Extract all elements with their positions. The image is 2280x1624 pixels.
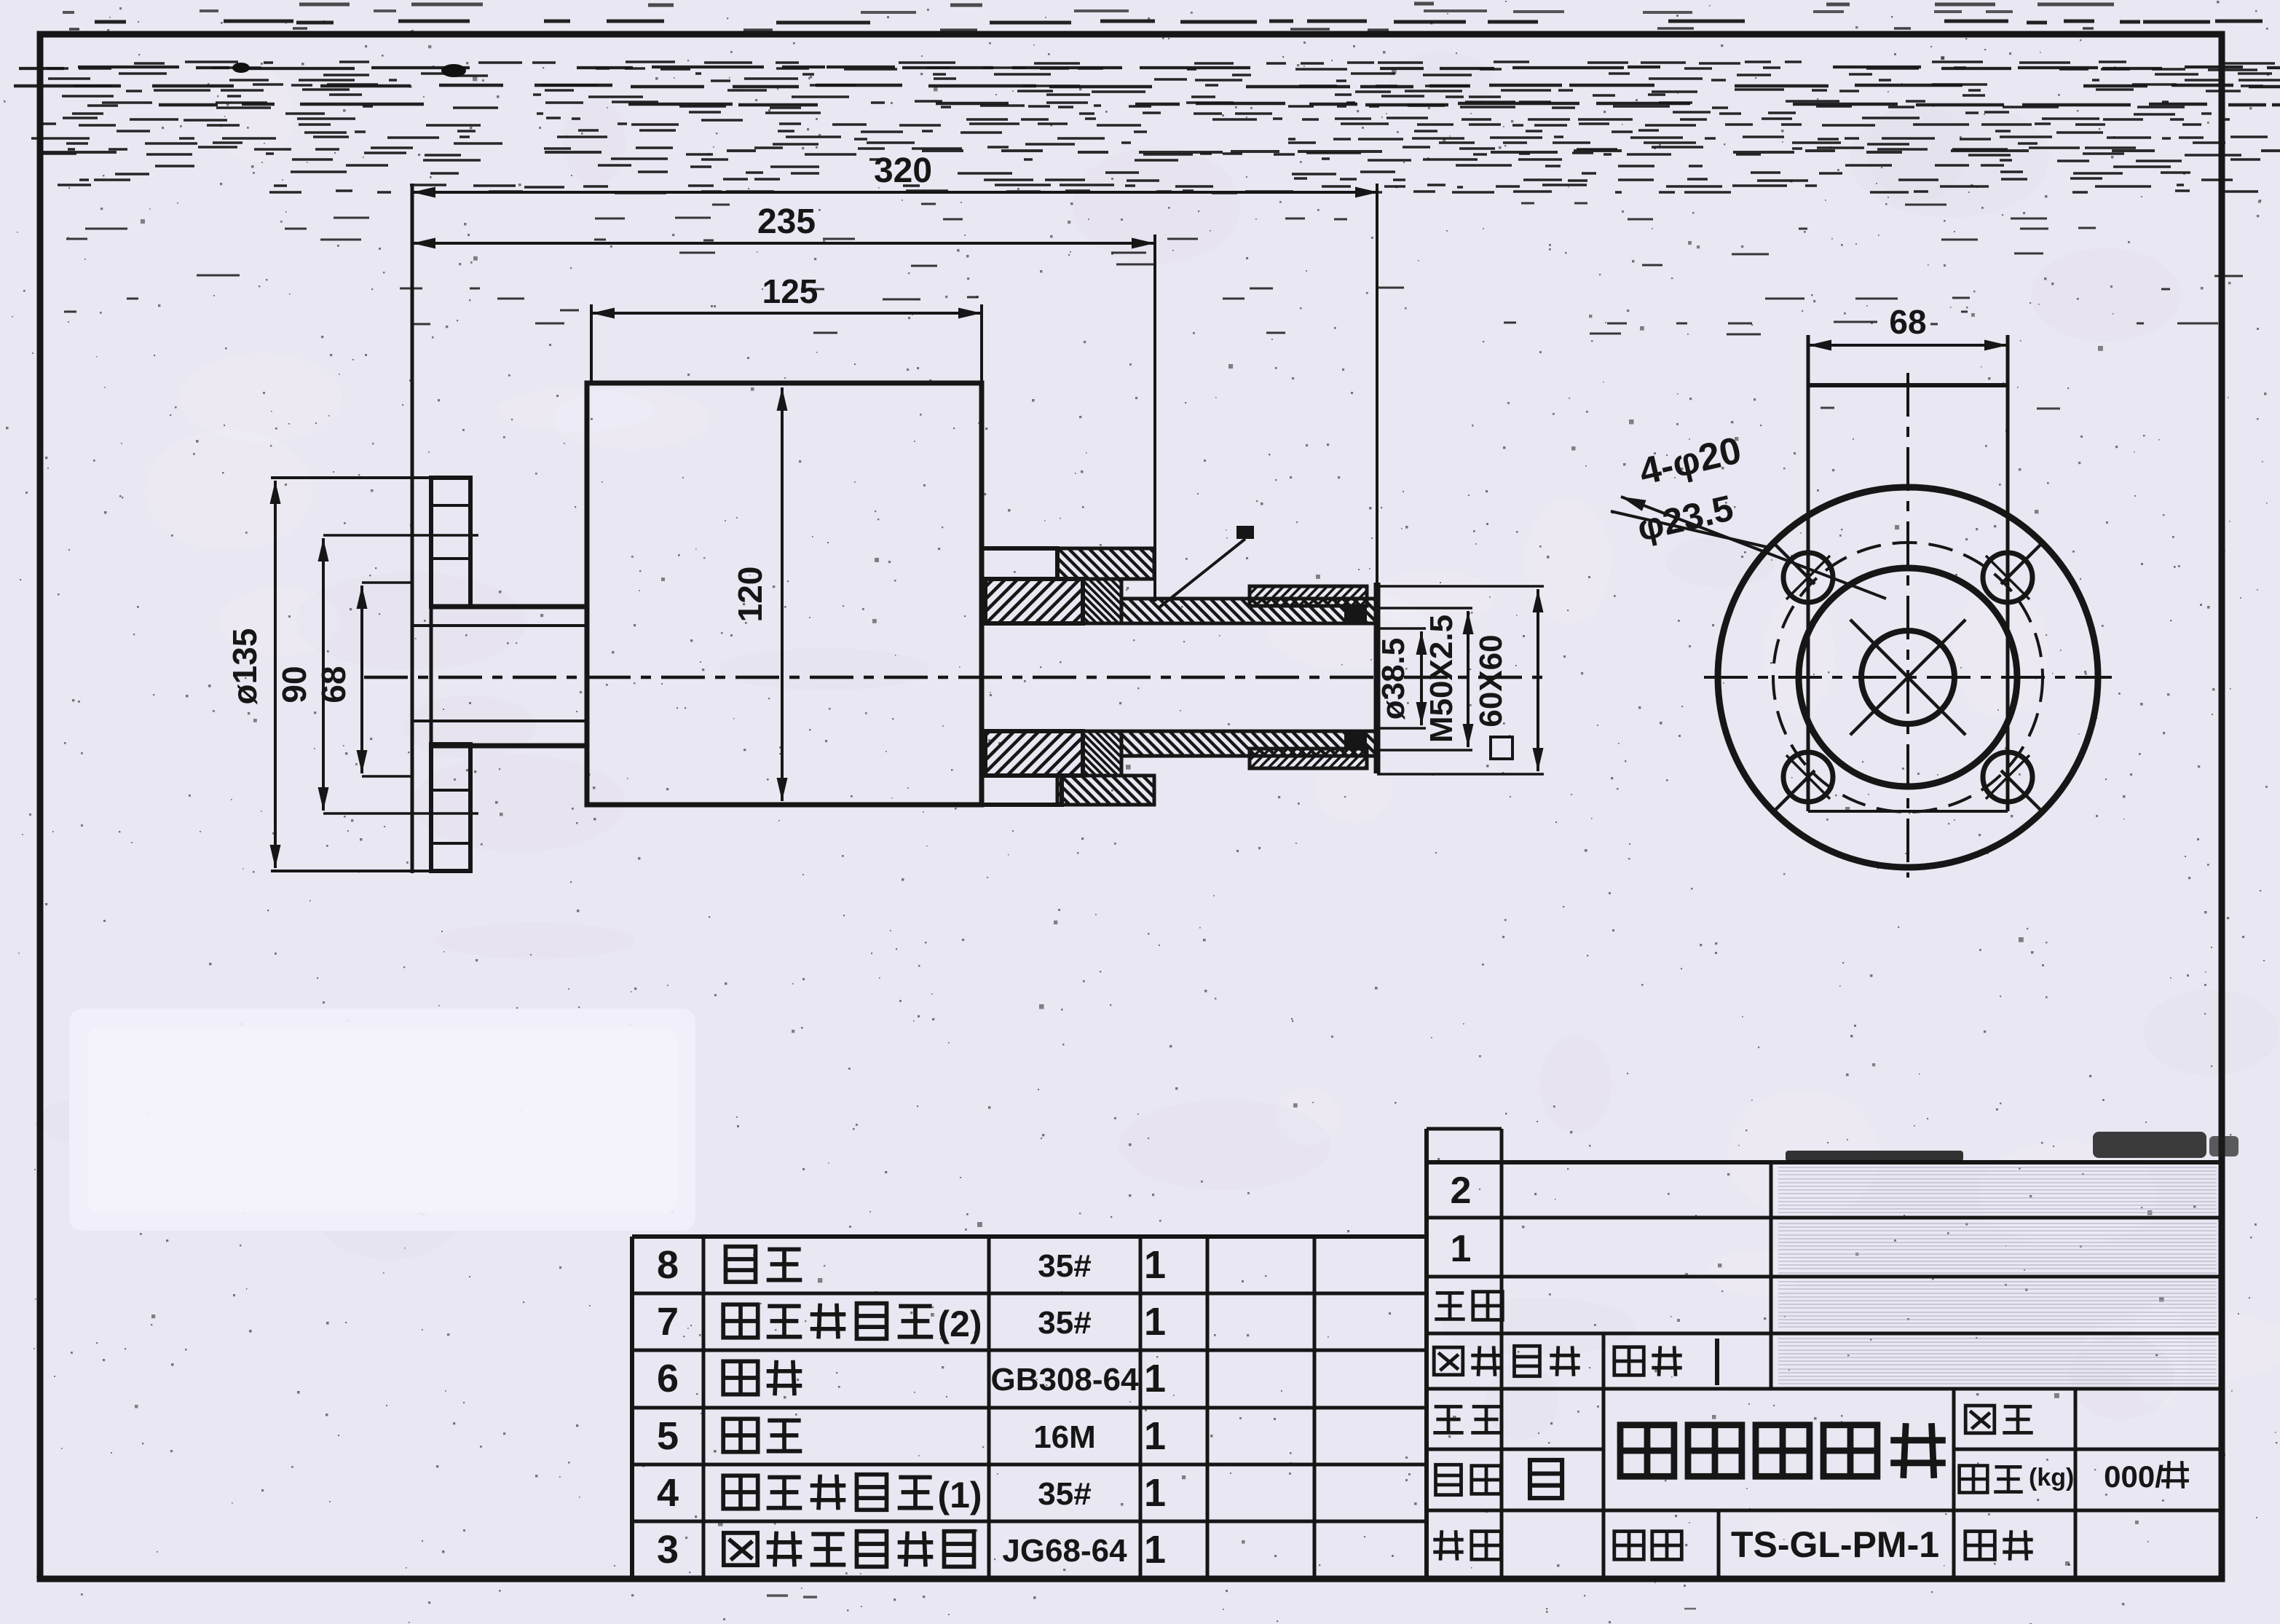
svg-text:1: 1	[1144, 1243, 1166, 1287]
svg-text:1: 1	[1451, 1228, 1472, 1270]
svg-text:16M: 16M	[1033, 1419, 1096, 1455]
svg-text:TS-GL-PM-1: TS-GL-PM-1	[1731, 1524, 1939, 1565]
svg-text:1: 1	[1144, 1300, 1166, 1344]
svg-text:320: 320	[874, 151, 932, 190]
svg-text:1: 1	[1144, 1414, 1166, 1458]
svg-text:68: 68	[1889, 303, 1926, 341]
svg-text:90: 90	[275, 666, 313, 703]
svg-text:8: 8	[657, 1243, 679, 1287]
svg-text:1: 1	[1144, 1471, 1166, 1515]
svg-text:2: 2	[1451, 1170, 1472, 1212]
svg-text:000/: 000/	[2104, 1459, 2163, 1494]
svg-text:125: 125	[762, 272, 818, 310]
svg-text:35#: 35#	[1038, 1248, 1091, 1284]
svg-text:(2): (2)	[937, 1304, 982, 1344]
svg-text:4: 4	[657, 1471, 679, 1515]
svg-text:68: 68	[315, 666, 352, 703]
svg-text:60X60: 60X60	[1473, 634, 1509, 727]
svg-text:35#: 35#	[1038, 1476, 1091, 1512]
svg-text:3: 3	[657, 1528, 679, 1572]
svg-text:120: 120	[731, 567, 769, 623]
svg-text:6: 6	[657, 1357, 679, 1400]
svg-text:235: 235	[757, 202, 816, 241]
svg-text:(1): (1)	[937, 1475, 982, 1515]
svg-text:(kg): (kg)	[2029, 1464, 2074, 1491]
svg-text:ø135: ø135	[226, 628, 264, 705]
svg-text:1: 1	[1144, 1357, 1166, 1400]
svg-text:ø38.5: ø38.5	[1376, 638, 1411, 720]
svg-text:5: 5	[657, 1414, 679, 1458]
svg-text:35#: 35#	[1038, 1305, 1091, 1341]
svg-text:M50X2.5: M50X2.5	[1424, 615, 1459, 743]
svg-text:JG68-64: JG68-64	[1002, 1533, 1127, 1569]
svg-text:GB308-64: GB308-64	[990, 1362, 1139, 1398]
svg-text:1: 1	[1144, 1528, 1166, 1572]
svg-text:7: 7	[657, 1300, 679, 1344]
